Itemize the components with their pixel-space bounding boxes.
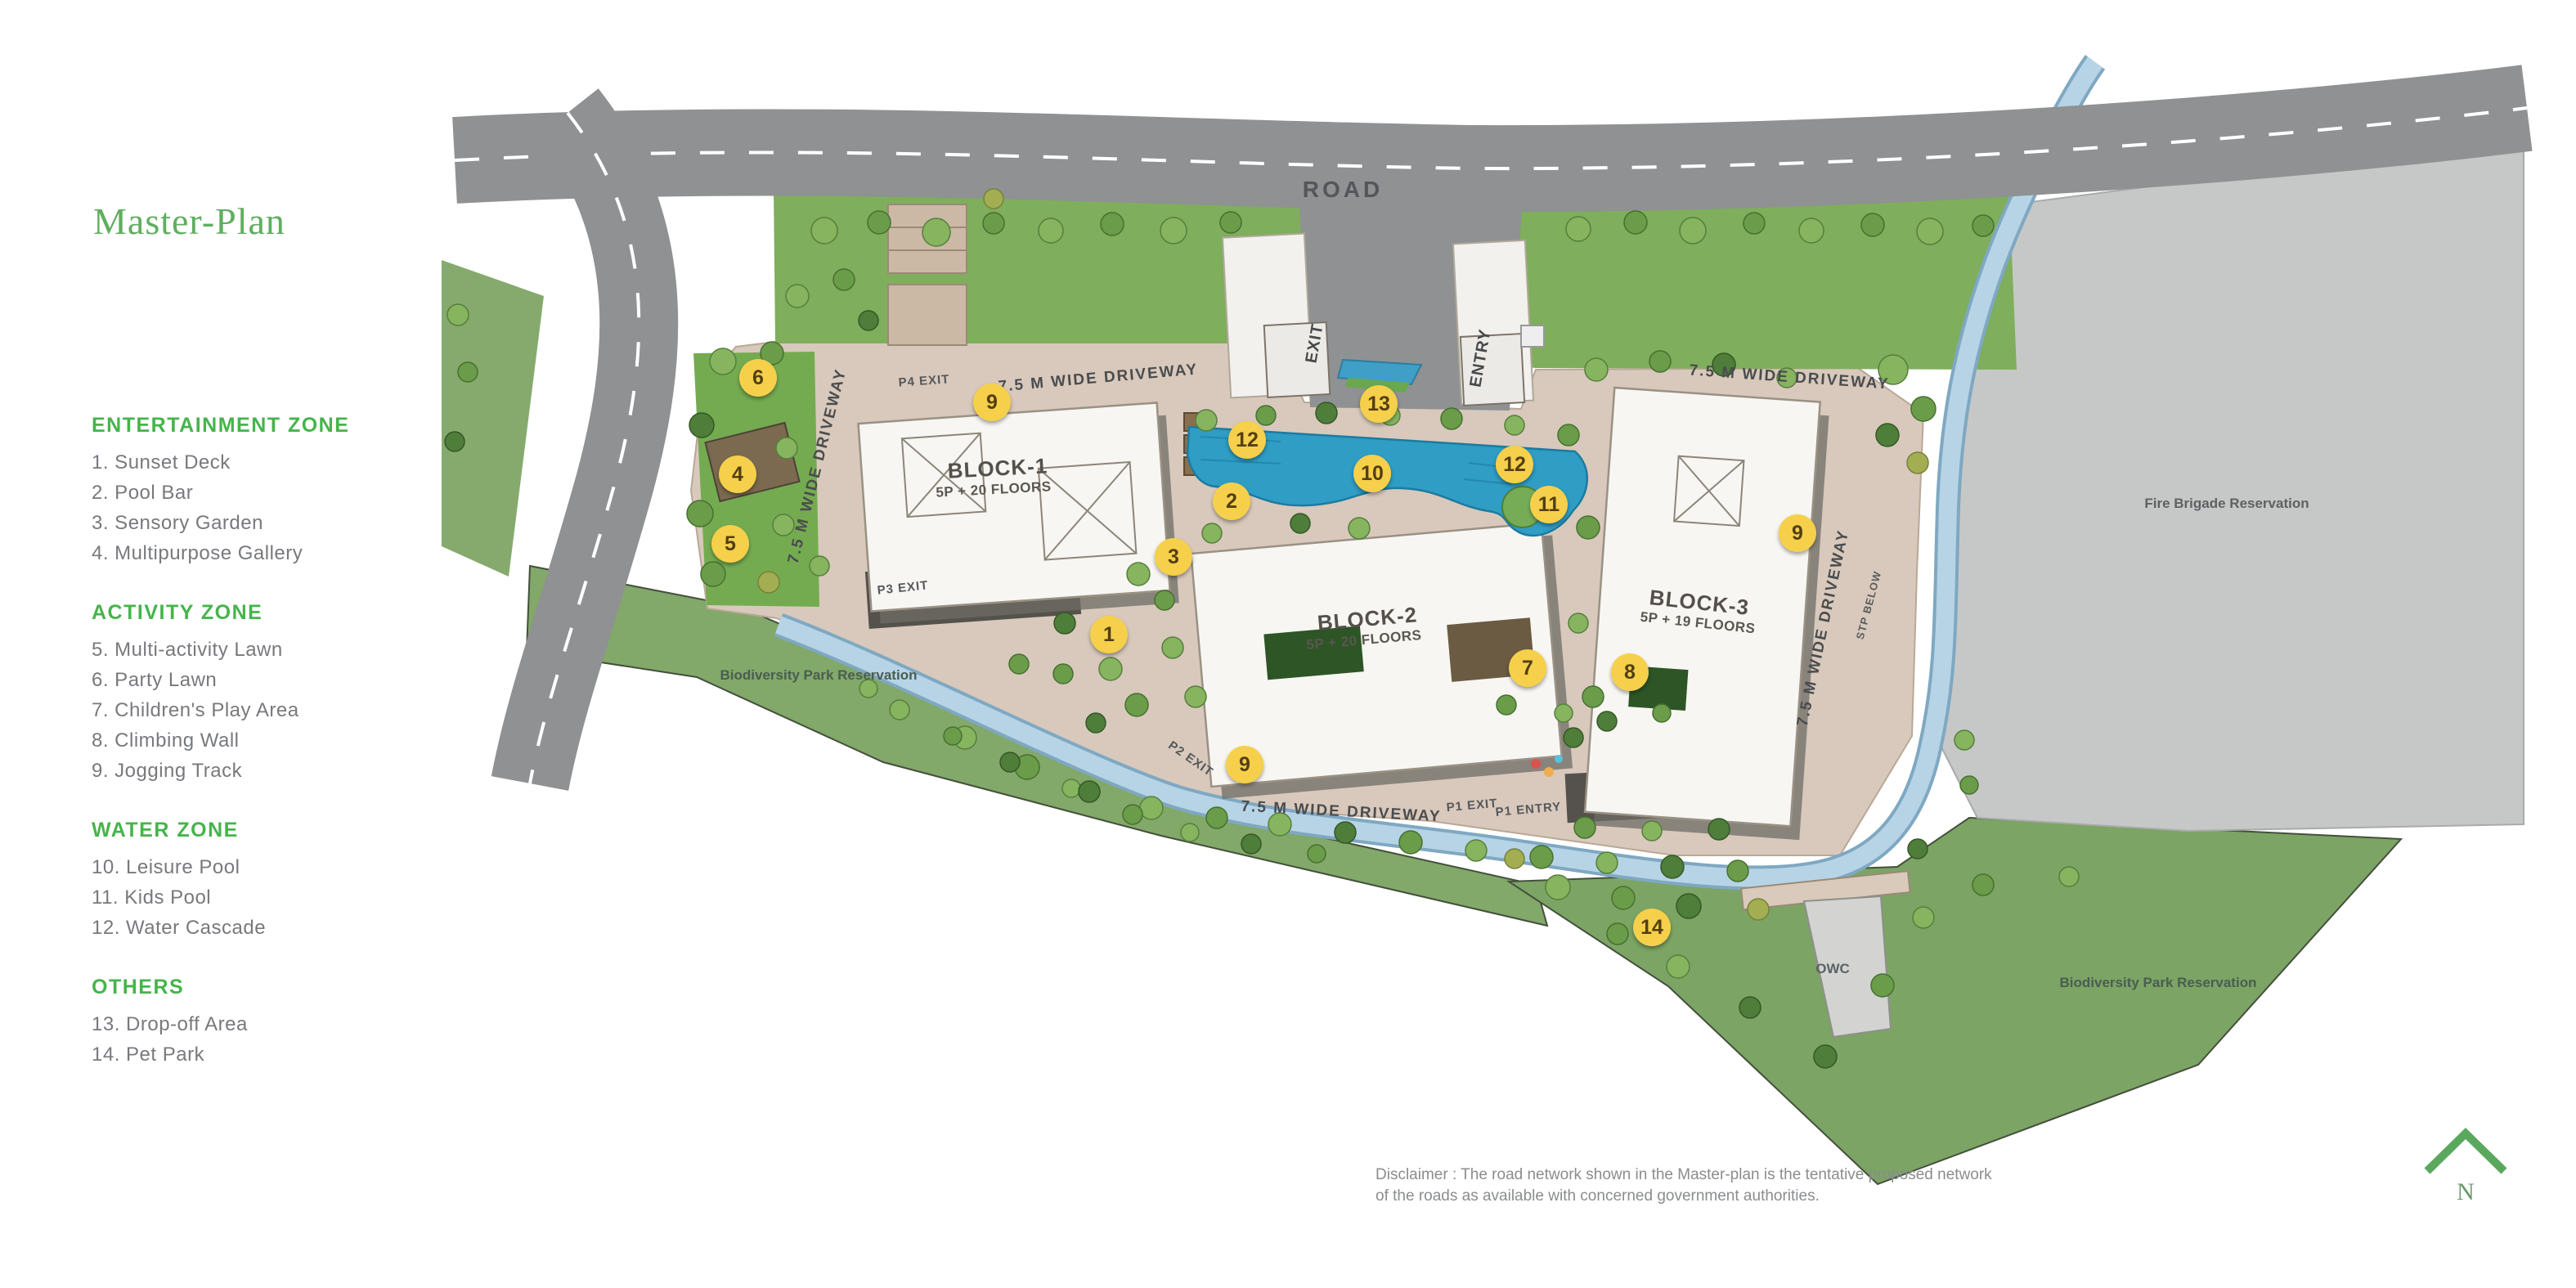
biodiversity-label-left: Biodiversity Park Reservation — [720, 667, 918, 684]
legend-item: 12. Water Cascade — [92, 913, 435, 943]
legend-item: 4. Multipurpose Gallery — [92, 538, 435, 568]
legend-item: 8. Climbing Wall — [92, 725, 435, 756]
map-marker-14: 14 — [1633, 909, 1671, 946]
disclaimer: Disclaimer : The road network shown in t… — [1376, 1165, 1992, 1207]
legend: ENTERTAINMENT ZONE 1. Sunset Deck 2. Poo… — [92, 414, 435, 1102]
map-marker-9a: 9 — [973, 384, 1011, 421]
map-marker-12b: 12 — [1496, 446, 1533, 483]
fire-brigade-label: Fire Brigade Reservation — [2144, 496, 2309, 512]
map-marker-6: 6 — [739, 359, 777, 397]
legend-section-entertainment: ENTERTAINMENT ZONE 1. Sunset Deck 2. Poo… — [92, 414, 435, 568]
map-marker-9b: 9 — [1226, 746, 1263, 783]
disclaimer-line-1: Disclaimer : The road network shown in t… — [1376, 1165, 1992, 1186]
north-indicator: N — [2412, 1122, 2519, 1212]
map-marker-8: 8 — [1611, 653, 1649, 691]
map-marker-9c: 9 — [1779, 514, 1816, 552]
biodiversity-label-right: Biodiversity Park Reservation — [2060, 975, 2257, 991]
legend-heading: WATER ZONE — [92, 819, 435, 842]
legend-item: 13. Drop-off Area — [92, 1009, 435, 1039]
map-marker-5: 5 — [711, 525, 749, 563]
map-marker-1: 1 — [1090, 616, 1128, 653]
legend-item: 1. Sunset Deck — [92, 447, 435, 478]
legend-heading: OTHERS — [92, 976, 435, 999]
map-marker-10: 10 — [1353, 455, 1391, 492]
legend-item: 7. Children's Play Area — [92, 695, 435, 725]
map-marker-7: 7 — [1509, 649, 1546, 687]
legend-item: 5. Multi-activity Lawn — [92, 635, 435, 665]
legend-item: 9. Jogging Track — [92, 756, 435, 786]
map-marker-13: 13 — [1360, 385, 1398, 423]
legend-item: 11. Kids Pool — [92, 882, 435, 913]
legend-item: 6. Party Lawn — [92, 665, 435, 695]
road-label: ROAD — [1303, 177, 1383, 203]
legend-item: 10. Leisure Pool — [92, 852, 435, 882]
legend-section-activity: ACTIVITY ZONE 5. Multi-activity Lawn 6. … — [92, 601, 435, 786]
legend-section-others: OTHERS 13. Drop-off Area 14. Pet Park — [92, 976, 435, 1070]
legend-heading: ACTIVITY ZONE — [92, 601, 435, 625]
legend-item: 2. Pool Bar — [92, 478, 435, 508]
legend-item: 3. Sensory Garden — [92, 508, 435, 538]
map-marker-2: 2 — [1213, 482, 1250, 520]
north-arrow-icon — [2412, 1122, 2519, 1179]
map-marker-11: 11 — [1530, 486, 1568, 523]
map-marker-3: 3 — [1155, 538, 1192, 576]
page-title: Master-Plan — [93, 200, 285, 243]
legend-item: 14. Pet Park — [92, 1039, 435, 1070]
map-marker-12a: 12 — [1228, 421, 1266, 459]
legend-heading: ENTERTAINMENT ZONE — [92, 414, 435, 438]
map-marker-4: 4 — [719, 456, 756, 493]
legend-section-water: WATER ZONE 10. Leisure Pool 11. Kids Poo… — [92, 819, 435, 943]
owc-label: OWC — [1815, 961, 1850, 977]
north-letter: N — [2412, 1178, 2519, 1206]
master-plan-page: Master-Plan ENTERTAINMENT ZONE 1. Sunset… — [0, 0, 2576, 1288]
disclaimer-line-2: of the roads as available with concerned… — [1376, 1186, 1992, 1207]
